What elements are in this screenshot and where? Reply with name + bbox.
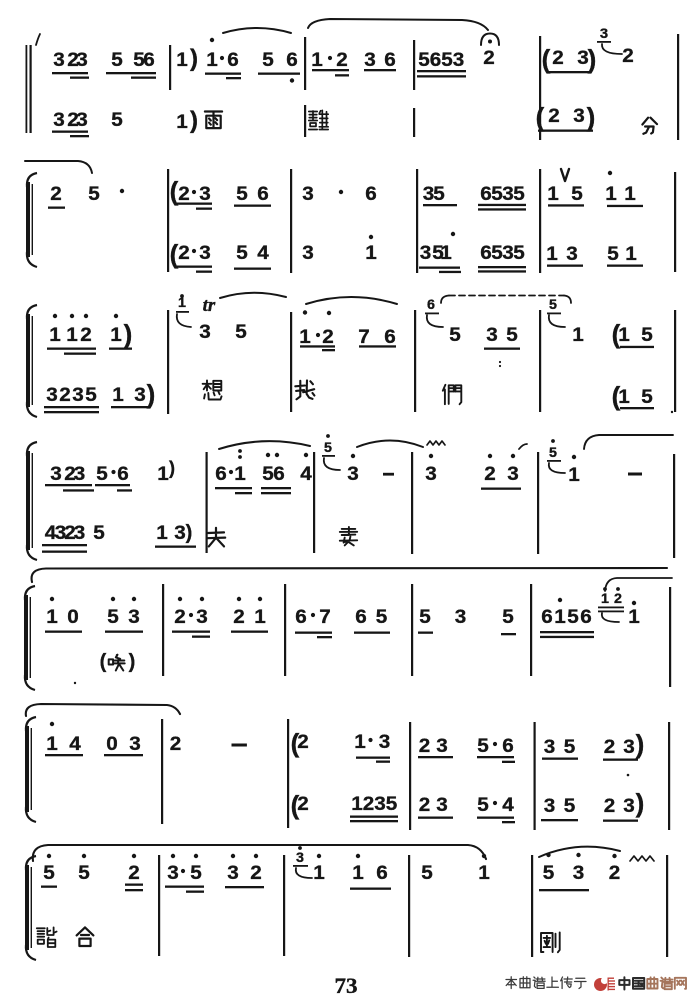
svg-text:): ) bbox=[636, 788, 645, 818]
svg-text:3: 3 bbox=[425, 464, 436, 485]
svg-text:5: 5 bbox=[43, 863, 54, 884]
svg-text:1: 1 bbox=[313, 863, 324, 884]
svg-text:): ) bbox=[169, 458, 175, 478]
svg-text:6: 6 bbox=[286, 50, 297, 71]
svg-text:1: 1 bbox=[311, 50, 322, 71]
svg-text:1: 1 bbox=[351, 794, 362, 815]
svg-text:3: 3 bbox=[436, 736, 447, 757]
svg-text:5: 5 bbox=[491, 184, 502, 205]
svg-text:6: 6 bbox=[257, 184, 268, 205]
svg-text:5: 5 bbox=[449, 325, 460, 346]
svg-text:6: 6 bbox=[117, 464, 128, 485]
svg-text:3: 3 bbox=[573, 106, 584, 127]
svg-text:5: 5 bbox=[386, 794, 397, 815]
svg-text:2: 2 bbox=[419, 736, 430, 757]
svg-text:1: 1 bbox=[547, 184, 558, 205]
svg-text:5: 5 bbox=[543, 863, 554, 884]
svg-text:5: 5 bbox=[477, 795, 488, 816]
svg-text:5: 5 bbox=[236, 243, 247, 264]
svg-text:3: 3 bbox=[199, 322, 210, 343]
svg-text:2: 2 bbox=[250, 863, 261, 884]
svg-text:1: 1 bbox=[110, 325, 121, 346]
svg-text:73: 73 bbox=[334, 973, 357, 997]
svg-text:6: 6 bbox=[502, 736, 513, 757]
svg-text:2: 2 bbox=[170, 734, 181, 755]
svg-text:3: 3 bbox=[134, 385, 145, 406]
svg-text:6: 6 bbox=[365, 184, 376, 205]
svg-text:6: 6 bbox=[427, 296, 435, 312]
svg-text:2: 2 bbox=[609, 863, 620, 884]
svg-text:7: 7 bbox=[358, 327, 369, 348]
svg-text:3: 3 bbox=[455, 607, 466, 628]
svg-text:2: 2 bbox=[483, 48, 494, 69]
svg-text:2: 2 bbox=[178, 243, 189, 264]
svg-text:3: 3 bbox=[623, 737, 634, 758]
svg-text:1: 1 bbox=[234, 464, 245, 485]
svg-text:5: 5 bbox=[107, 607, 118, 628]
svg-text:3: 3 bbox=[600, 26, 608, 42]
svg-text:3: 3 bbox=[199, 243, 210, 264]
svg-text:3: 3 bbox=[50, 464, 61, 485]
svg-text:2: 2 bbox=[363, 794, 374, 815]
svg-text:1: 1 bbox=[625, 244, 636, 265]
svg-text:3: 3 bbox=[76, 110, 87, 131]
svg-text:1: 1 bbox=[299, 327, 310, 348]
svg-text:2: 2 bbox=[336, 50, 347, 71]
svg-text:3: 3 bbox=[623, 796, 634, 817]
svg-text:0: 0 bbox=[106, 734, 117, 755]
svg-text:1: 1 bbox=[176, 50, 187, 71]
svg-text:1: 1 bbox=[176, 112, 187, 133]
svg-text:3: 3 bbox=[453, 50, 464, 71]
svg-text:1: 1 bbox=[49, 325, 60, 346]
svg-text:1: 1 bbox=[46, 607, 57, 628]
svg-text:1: 1 bbox=[554, 607, 565, 628]
svg-text:2: 2 bbox=[419, 795, 430, 816]
svg-text:): ) bbox=[190, 107, 198, 134]
svg-text:1: 1 bbox=[628, 607, 639, 628]
svg-text:0: 0 bbox=[67, 607, 78, 628]
svg-text:6: 6 bbox=[384, 327, 395, 348]
svg-text:5: 5 bbox=[441, 50, 452, 71]
svg-text:6: 6 bbox=[541, 607, 552, 628]
svg-text:1: 1 bbox=[618, 325, 629, 346]
svg-text:3: 3 bbox=[196, 607, 207, 628]
svg-text:): ) bbox=[147, 379, 156, 409]
svg-text:5: 5 bbox=[324, 439, 332, 455]
svg-text:3: 3 bbox=[46, 385, 57, 406]
svg-text:4: 4 bbox=[300, 464, 312, 485]
svg-text:1: 1 bbox=[178, 294, 186, 310]
svg-text:5: 5 bbox=[419, 607, 430, 628]
svg-text:3: 3 bbox=[174, 523, 185, 544]
svg-text:3: 3 bbox=[502, 243, 513, 264]
svg-text:2: 2 bbox=[59, 385, 70, 406]
svg-text:1: 1 bbox=[568, 465, 579, 486]
svg-text:5: 5 bbox=[96, 464, 107, 485]
svg-text:5: 5 bbox=[111, 110, 122, 131]
svg-text:7: 7 bbox=[319, 607, 330, 628]
svg-text:5: 5 bbox=[607, 244, 618, 265]
svg-text:6: 6 bbox=[227, 50, 238, 71]
svg-text:2: 2 bbox=[80, 325, 91, 346]
svg-text:2: 2 bbox=[174, 607, 185, 628]
svg-text:3: 3 bbox=[74, 523, 85, 544]
svg-text:5: 5 bbox=[564, 737, 575, 758]
svg-text:(: ( bbox=[100, 651, 107, 673]
svg-text:5: 5 bbox=[513, 243, 524, 264]
svg-text:5: 5 bbox=[567, 607, 578, 628]
svg-text:3: 3 bbox=[72, 385, 83, 406]
svg-text:1: 1 bbox=[478, 863, 489, 884]
svg-text:2: 2 bbox=[604, 796, 615, 817]
svg-text:6: 6 bbox=[295, 607, 306, 628]
svg-text:3: 3 bbox=[129, 734, 140, 755]
svg-text:4: 4 bbox=[502, 795, 514, 816]
svg-text:1: 1 bbox=[254, 607, 265, 628]
svg-text:): ) bbox=[636, 729, 645, 759]
svg-text:1: 1 bbox=[156, 523, 167, 544]
svg-text:1: 1 bbox=[572, 325, 583, 346]
svg-text:1: 1 bbox=[618, 387, 629, 408]
svg-text:3: 3 bbox=[296, 849, 304, 865]
svg-text:5: 5 bbox=[88, 184, 99, 205]
svg-text:3: 3 bbox=[302, 243, 313, 264]
svg-text:3: 3 bbox=[227, 863, 238, 884]
svg-text:3: 3 bbox=[486, 325, 497, 346]
svg-text:3: 3 bbox=[544, 737, 555, 758]
svg-text:5: 5 bbox=[549, 444, 557, 460]
svg-text:1: 1 bbox=[46, 734, 57, 755]
svg-text:1: 1 bbox=[157, 464, 168, 485]
svg-text:3: 3 bbox=[76, 50, 87, 71]
svg-text:2: 2 bbox=[552, 48, 563, 69]
svg-text:3: 3 bbox=[507, 464, 518, 485]
svg-text:1: 1 bbox=[365, 243, 376, 264]
svg-text:6: 6 bbox=[215, 464, 226, 485]
svg-text:2: 2 bbox=[614, 590, 622, 606]
svg-text:3: 3 bbox=[573, 863, 584, 884]
svg-text:): ) bbox=[190, 45, 198, 72]
svg-text:2: 2 bbox=[622, 46, 633, 67]
svg-text:): ) bbox=[587, 102, 596, 132]
svg-text:1: 1 bbox=[601, 590, 609, 606]
svg-text:5: 5 bbox=[111, 50, 122, 71]
svg-text:4: 4 bbox=[69, 734, 81, 755]
svg-text:1: 1 bbox=[206, 50, 217, 71]
svg-text:6: 6 bbox=[580, 607, 591, 628]
svg-text:5: 5 bbox=[513, 184, 524, 205]
svg-text:5: 5 bbox=[421, 863, 432, 884]
svg-text:1: 1 bbox=[352, 863, 363, 884]
svg-text:5: 5 bbox=[262, 50, 273, 71]
svg-text:3: 3 bbox=[566, 244, 577, 265]
svg-text:5: 5 bbox=[93, 523, 104, 544]
svg-text:6: 6 bbox=[376, 863, 387, 884]
svg-text:2: 2 bbox=[297, 732, 308, 753]
svg-text:2: 2 bbox=[297, 794, 308, 815]
svg-text:2: 2 bbox=[128, 863, 139, 884]
svg-text:3: 3 bbox=[364, 50, 375, 71]
svg-text:(: ( bbox=[542, 44, 551, 74]
svg-text:5: 5 bbox=[85, 385, 96, 406]
svg-text:tr: tr bbox=[203, 295, 216, 316]
svg-text:5: 5 bbox=[433, 184, 444, 205]
svg-text:1: 1 bbox=[440, 243, 451, 264]
svg-text:5: 5 bbox=[477, 736, 488, 757]
svg-text:3: 3 bbox=[53, 50, 64, 71]
svg-text:6: 6 bbox=[384, 50, 395, 71]
svg-text:3: 3 bbox=[53, 110, 64, 131]
svg-text:5: 5 bbox=[506, 325, 517, 346]
svg-text:3: 3 bbox=[502, 184, 513, 205]
svg-text:5: 5 bbox=[236, 184, 247, 205]
svg-text:): ) bbox=[588, 44, 597, 74]
svg-text:1: 1 bbox=[546, 244, 557, 265]
svg-text:): ) bbox=[124, 319, 133, 349]
svg-text:5: 5 bbox=[641, 325, 652, 346]
svg-text:5: 5 bbox=[190, 863, 201, 884]
svg-text:1: 1 bbox=[624, 184, 635, 205]
svg-text:): ) bbox=[129, 651, 136, 673]
svg-text:3: 3 bbox=[544, 796, 555, 817]
svg-text:6: 6 bbox=[143, 50, 154, 71]
svg-text:1: 1 bbox=[354, 732, 365, 753]
svg-text:3: 3 bbox=[374, 794, 385, 815]
svg-text:3: 3 bbox=[379, 732, 390, 753]
svg-text:5: 5 bbox=[262, 464, 273, 485]
svg-text:(: ( bbox=[536, 102, 545, 132]
svg-text:): ) bbox=[186, 522, 193, 544]
svg-text:3: 3 bbox=[436, 795, 447, 816]
svg-text:3: 3 bbox=[167, 863, 178, 884]
svg-text:3: 3 bbox=[74, 464, 85, 485]
svg-text:5: 5 bbox=[491, 243, 502, 264]
svg-text:2: 2 bbox=[484, 464, 495, 485]
svg-text:5: 5 bbox=[549, 296, 557, 312]
svg-text:3: 3 bbox=[199, 184, 210, 205]
svg-text:1: 1 bbox=[66, 325, 77, 346]
svg-text:3: 3 bbox=[420, 243, 431, 264]
svg-text:6: 6 bbox=[480, 243, 491, 264]
svg-text:5: 5 bbox=[78, 863, 89, 884]
svg-text:5: 5 bbox=[571, 184, 582, 205]
svg-text:5: 5 bbox=[376, 607, 387, 628]
svg-text:5: 5 bbox=[502, 607, 513, 628]
svg-text:2: 2 bbox=[548, 106, 559, 127]
svg-text:6: 6 bbox=[480, 184, 491, 205]
svg-text:2: 2 bbox=[604, 737, 615, 758]
svg-text:5: 5 bbox=[564, 796, 575, 817]
svg-text:2: 2 bbox=[322, 327, 333, 348]
svg-text:6: 6 bbox=[430, 50, 441, 71]
svg-text:6: 6 bbox=[355, 607, 366, 628]
svg-text:5: 5 bbox=[418, 50, 429, 71]
svg-text:2: 2 bbox=[233, 607, 244, 628]
svg-text:3: 3 bbox=[347, 464, 358, 485]
svg-text:3: 3 bbox=[302, 184, 313, 205]
svg-text:2: 2 bbox=[178, 184, 189, 205]
svg-text:5: 5 bbox=[235, 322, 246, 343]
svg-text:4: 4 bbox=[257, 243, 269, 264]
svg-text:3: 3 bbox=[128, 607, 139, 628]
svg-text:1: 1 bbox=[112, 385, 123, 406]
svg-text:5: 5 bbox=[641, 387, 652, 408]
svg-text:6: 6 bbox=[273, 464, 284, 485]
svg-text:2: 2 bbox=[50, 184, 61, 205]
svg-text:1: 1 bbox=[605, 184, 616, 205]
